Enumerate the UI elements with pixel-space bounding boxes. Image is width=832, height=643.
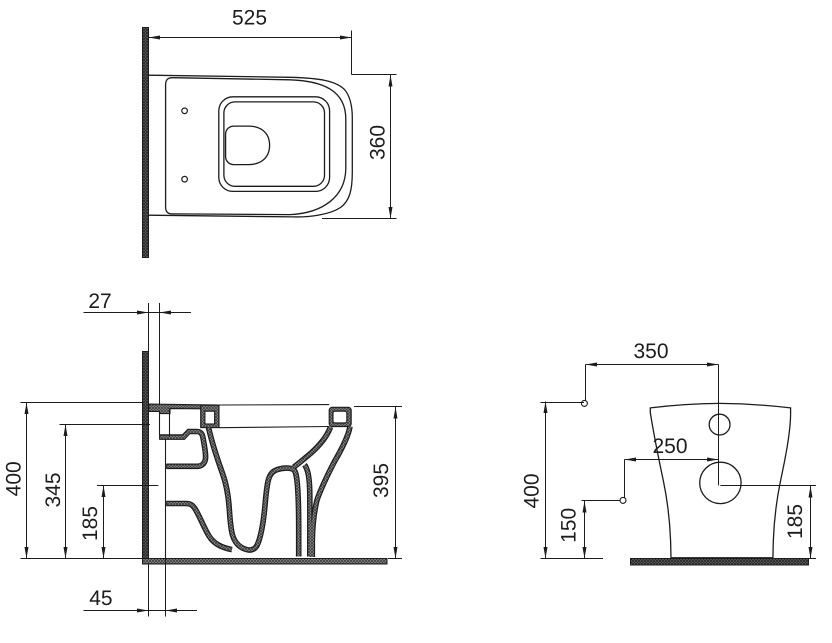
svg-text:525: 525 xyxy=(232,7,267,30)
svg-text:395: 395 xyxy=(370,463,393,498)
svg-text:185: 185 xyxy=(79,506,102,541)
svg-text:400: 400 xyxy=(520,473,543,508)
svg-text:350: 350 xyxy=(633,340,668,363)
svg-text:360: 360 xyxy=(367,125,390,160)
svg-text:345: 345 xyxy=(42,472,65,507)
svg-text:45: 45 xyxy=(89,587,112,610)
svg-text:27: 27 xyxy=(88,290,111,313)
svg-text:250: 250 xyxy=(652,435,687,458)
svg-text:185: 185 xyxy=(784,504,807,539)
svg-text:400: 400 xyxy=(3,461,26,496)
svg-text:150: 150 xyxy=(558,508,581,543)
